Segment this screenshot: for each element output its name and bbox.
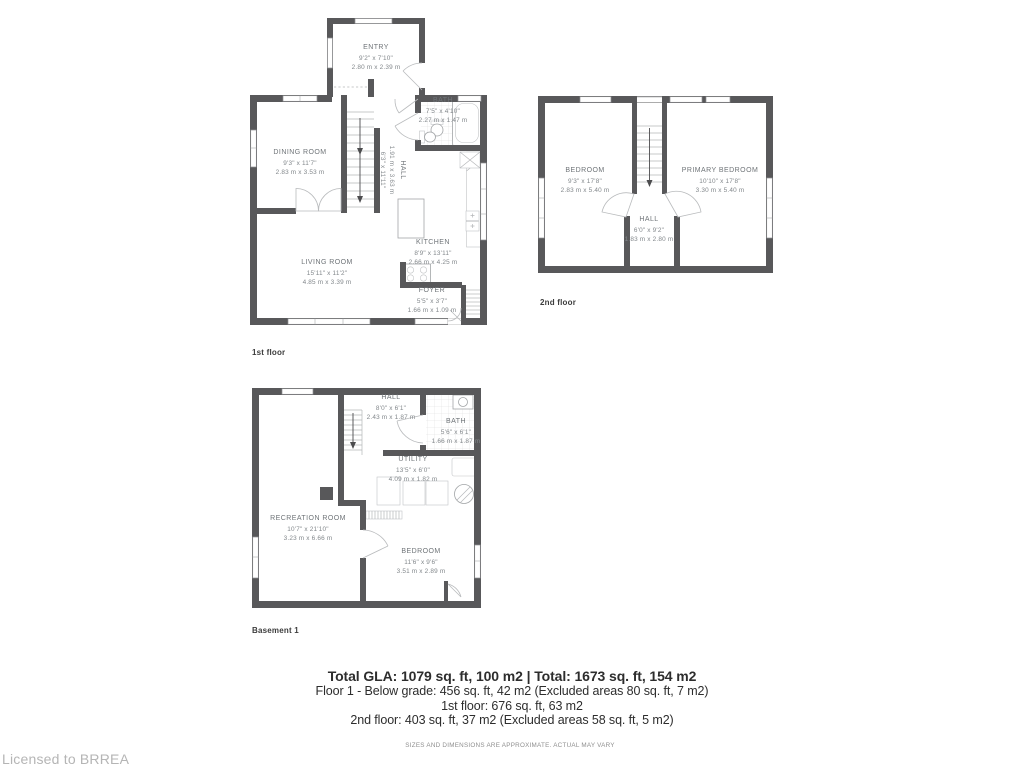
basement-stairs xyxy=(344,410,362,455)
area-summary: Total GLA: 1079 sq. ft, 100 m2 | Total: … xyxy=(0,668,1024,728)
license-text: Licensed to BRREA xyxy=(2,751,129,767)
basement-plan-svg xyxy=(245,383,490,623)
second-floor-walls xyxy=(538,96,773,273)
first-floor-fixtures xyxy=(334,87,482,314)
first-floor-stairs xyxy=(347,112,374,207)
second-floor-doors xyxy=(602,191,701,217)
second-floor-area-line: 2nd floor: 403 sq. ft, 37 m2 (Excluded a… xyxy=(0,713,1024,728)
floor1-area-line: Floor 1 - Below grade: 456 sq. ft, 42 m2… xyxy=(0,684,1024,699)
caption-basement: Basement 1 xyxy=(252,626,299,635)
first-floor-windows xyxy=(251,19,487,325)
caption-second-floor: 2nd floor xyxy=(540,298,576,307)
second-floor-stairs xyxy=(637,126,662,187)
caption-first-floor: 1st floor xyxy=(252,348,285,357)
floorplan-page: { "colors": { "wall": "#58585a", "accent… xyxy=(0,0,1024,768)
first-floor-plan-svg xyxy=(245,8,500,363)
first-floor-walls xyxy=(250,18,487,325)
second-floor-windows xyxy=(539,97,773,239)
first-floor-area-line: 1st floor: 676 sq. ft, 63 m2 xyxy=(0,699,1024,714)
disclaimer-text: SIZES AND DIMENSIONS ARE APPROXIMATE. AC… xyxy=(0,742,1020,749)
total-gla-line: Total GLA: 1079 sq. ft, 100 m2 | Total: … xyxy=(0,668,1024,684)
second-floor-plan-svg xyxy=(530,88,780,313)
